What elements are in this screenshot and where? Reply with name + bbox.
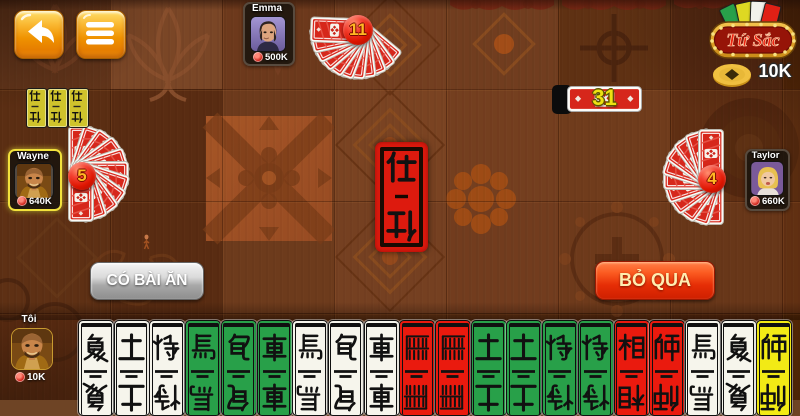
- svg-text:Tứ Sắc: Tứ Sắc: [726, 30, 779, 50]
